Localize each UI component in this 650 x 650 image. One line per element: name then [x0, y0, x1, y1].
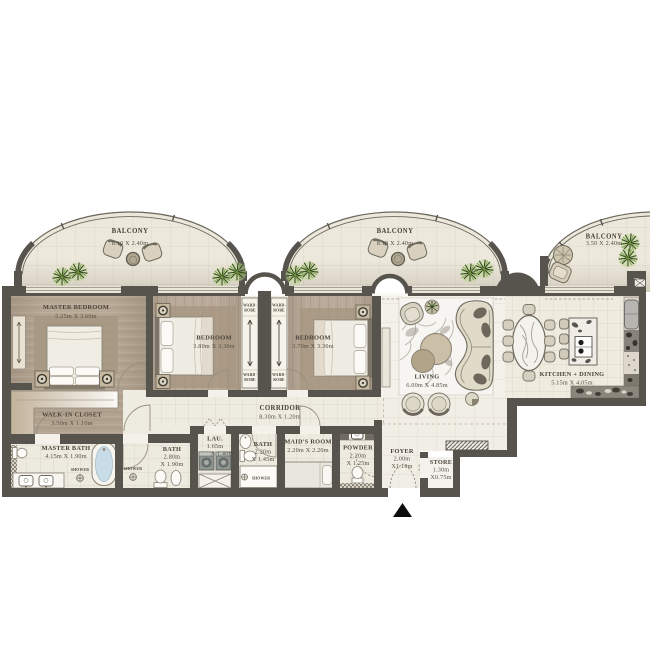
svg-text:1.65m: 1.65m — [207, 443, 224, 450]
svg-text:4.15m X 1.90m: 4.15m X 1.90m — [45, 453, 86, 460]
svg-text:POWDER: POWDER — [343, 445, 373, 452]
svg-text:2.80m: 2.80m — [164, 454, 181, 461]
svg-text:MASTER BATH: MASTER BATH — [42, 445, 91, 452]
svg-text:2.20m: 2.20m — [350, 453, 367, 460]
svg-text:ROBE: ROBE — [273, 378, 285, 382]
svg-text:8.10 X 2.40m: 8.10 X 2.40m — [377, 240, 413, 247]
svg-text:3.50 X 2.40m: 3.50 X 2.40m — [586, 240, 622, 247]
svg-text:X 1.90m: X 1.90m — [160, 461, 183, 468]
svg-text:X 1.45m: X 1.45m — [251, 456, 274, 463]
svg-text:2.20m X 2.20m: 2.20m X 2.20m — [287, 447, 328, 454]
svg-text:BALCONY: BALCONY — [377, 228, 414, 235]
svg-text:WARD-: WARD- — [272, 304, 286, 308]
svg-text:3.80m X 3.30m: 3.80m X 3.30m — [193, 343, 234, 350]
svg-text:FOYER: FOYER — [390, 448, 413, 455]
svg-text:8.30m X 1.20m: 8.30m X 1.20m — [259, 414, 300, 421]
svg-text:SHOWER: SHOWER — [252, 477, 270, 481]
svg-text:1.30m: 1.30m — [433, 467, 450, 474]
svg-text:5.25m X 3.60m: 5.25m X 3.60m — [55, 313, 96, 320]
svg-text:3.50m X 1.10m: 3.50m X 1.10m — [51, 420, 92, 427]
svg-text:2.00m: 2.00m — [394, 456, 411, 463]
svg-text:BEDROOM: BEDROOM — [295, 335, 330, 342]
svg-text:CORRIDOR: CORRIDOR — [260, 405, 301, 412]
svg-text:5.15m X 4.05m: 5.15m X 4.05m — [551, 380, 592, 387]
svg-text:BATH: BATH — [254, 441, 272, 448]
svg-text:KITCHEN + DINING: KITCHEN + DINING — [540, 371, 605, 378]
svg-text:LAU.: LAU. — [207, 436, 223, 443]
svg-text:WARD-: WARD- — [272, 373, 286, 377]
svg-text:MAID'S ROOM: MAID'S ROOM — [284, 439, 331, 446]
svg-text:LIVING: LIVING — [415, 374, 440, 381]
svg-text:SHOWER: SHOWER — [71, 468, 89, 472]
svg-text:ROBE: ROBE — [244, 309, 256, 313]
svg-text:X1.10m: X1.10m — [391, 463, 412, 470]
svg-text:SHOWER: SHOWER — [124, 467, 142, 471]
svg-text:2.20m: 2.20m — [255, 449, 272, 456]
svg-text:6.00m X 4.85m: 6.00m X 4.85m — [406, 382, 447, 389]
svg-text:BEDROOM: BEDROOM — [196, 335, 231, 342]
svg-text:ROBE: ROBE — [273, 309, 285, 313]
svg-text:MASTER BEDROOM: MASTER BEDROOM — [43, 304, 109, 311]
svg-text:X 1.25m: X 1.25m — [346, 460, 369, 467]
svg-text:STORE: STORE — [430, 459, 452, 466]
svg-text:BATH: BATH — [163, 446, 181, 453]
svg-text:X0.75m: X0.75m — [430, 474, 451, 481]
svg-text:X 1.40m: X 1.40m — [210, 451, 233, 458]
svg-text:3.70m X 3.30m: 3.70m X 3.30m — [292, 343, 333, 350]
svg-text:BALCONY: BALCONY — [112, 228, 149, 235]
svg-text:WARD-: WARD- — [243, 373, 257, 377]
svg-text:WARD-: WARD- — [243, 304, 257, 308]
svg-text:WALK-IN CLOSET: WALK-IN CLOSET — [42, 412, 102, 419]
svg-text:8.10 X 2.40m: 8.10 X 2.40m — [112, 240, 148, 247]
svg-text:ROBE: ROBE — [244, 378, 256, 382]
